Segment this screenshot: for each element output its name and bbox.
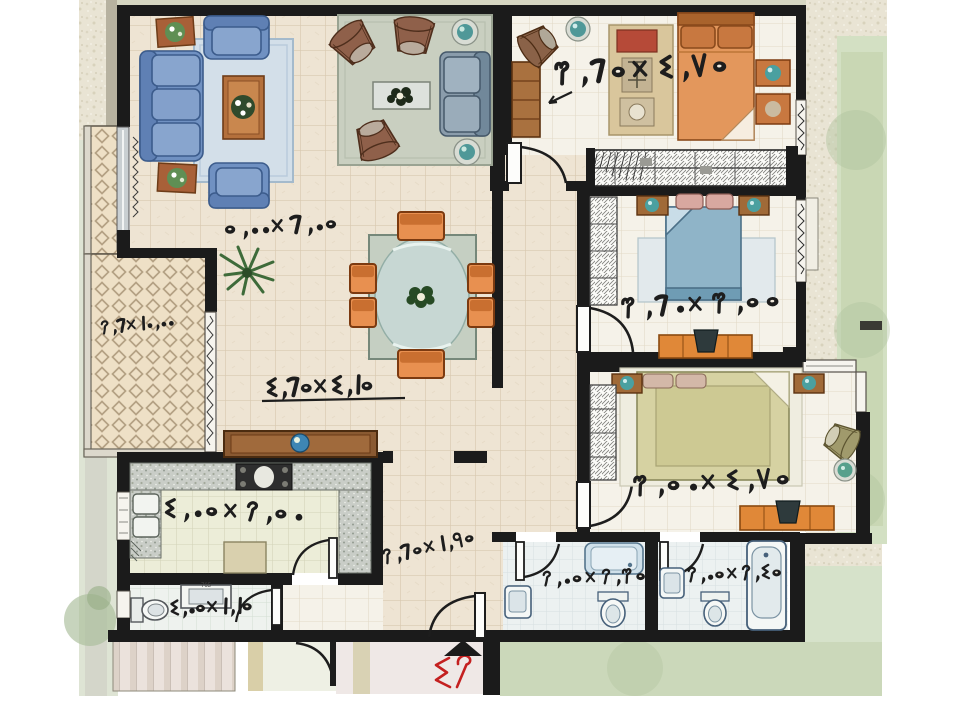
svg-text:765: 765 <box>201 583 212 589</box>
